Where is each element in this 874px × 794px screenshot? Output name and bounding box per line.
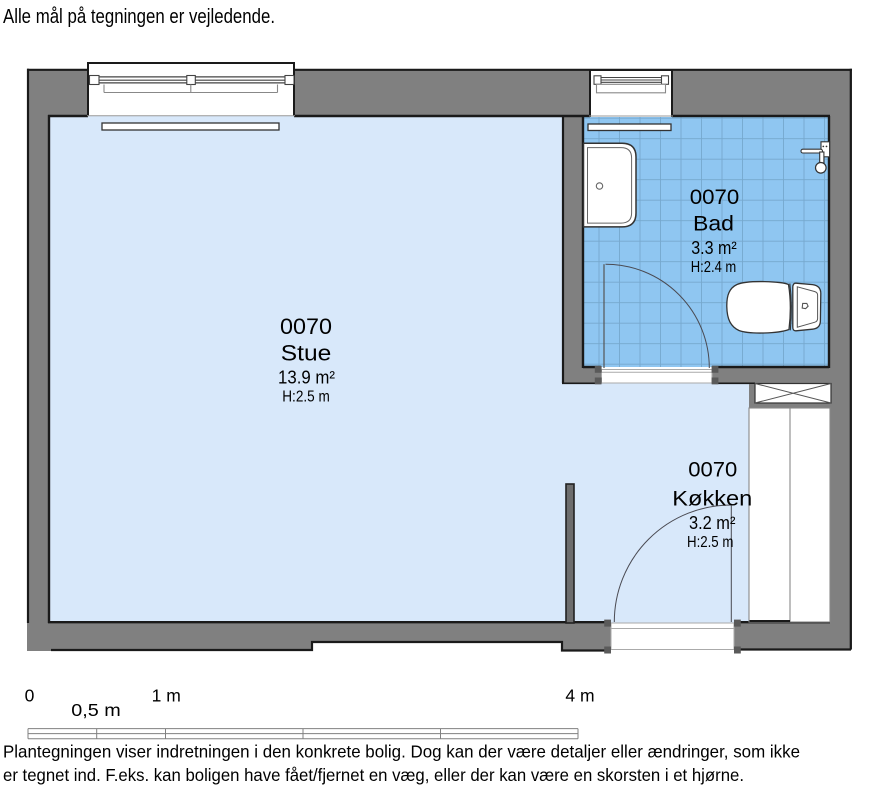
svg-text:0,5 m: 0,5 m [71,700,121,720]
svg-text:1 m: 1 m [152,686,181,706]
svg-text:0070: 0070 [688,459,737,482]
svg-text:Stue: Stue [281,340,332,365]
svg-text:3.2 m²: 3.2 m² [689,513,735,533]
svg-text:Alle mål på tegningen er vejle: Alle mål på tegningen er vejledende. [3,6,275,28]
svg-text:4 m: 4 m [565,686,594,706]
svg-text:0070: 0070 [690,186,740,209]
svg-text:Køkken: Køkken [672,488,752,511]
svg-text:0070: 0070 [280,314,332,339]
svg-text:er tegnet ind. F.eks. kan boli: er tegnet ind. F.eks. kan boligen have f… [3,765,744,785]
svg-text:H:2.4 m: H:2.4 m [691,259,737,276]
svg-text:Plantegningen viser indretning: Plantegningen viser indretningen i den k… [3,742,800,762]
svg-text:0: 0 [25,686,35,706]
svg-text:H:2.5 m: H:2.5 m [282,389,330,406]
svg-text:13.9 m²: 13.9 m² [278,367,335,387]
svg-text:Bad: Bad [693,213,734,236]
svg-text:H:2.5 m: H:2.5 m [687,534,733,551]
svg-text:3.3 m²: 3.3 m² [691,238,737,258]
